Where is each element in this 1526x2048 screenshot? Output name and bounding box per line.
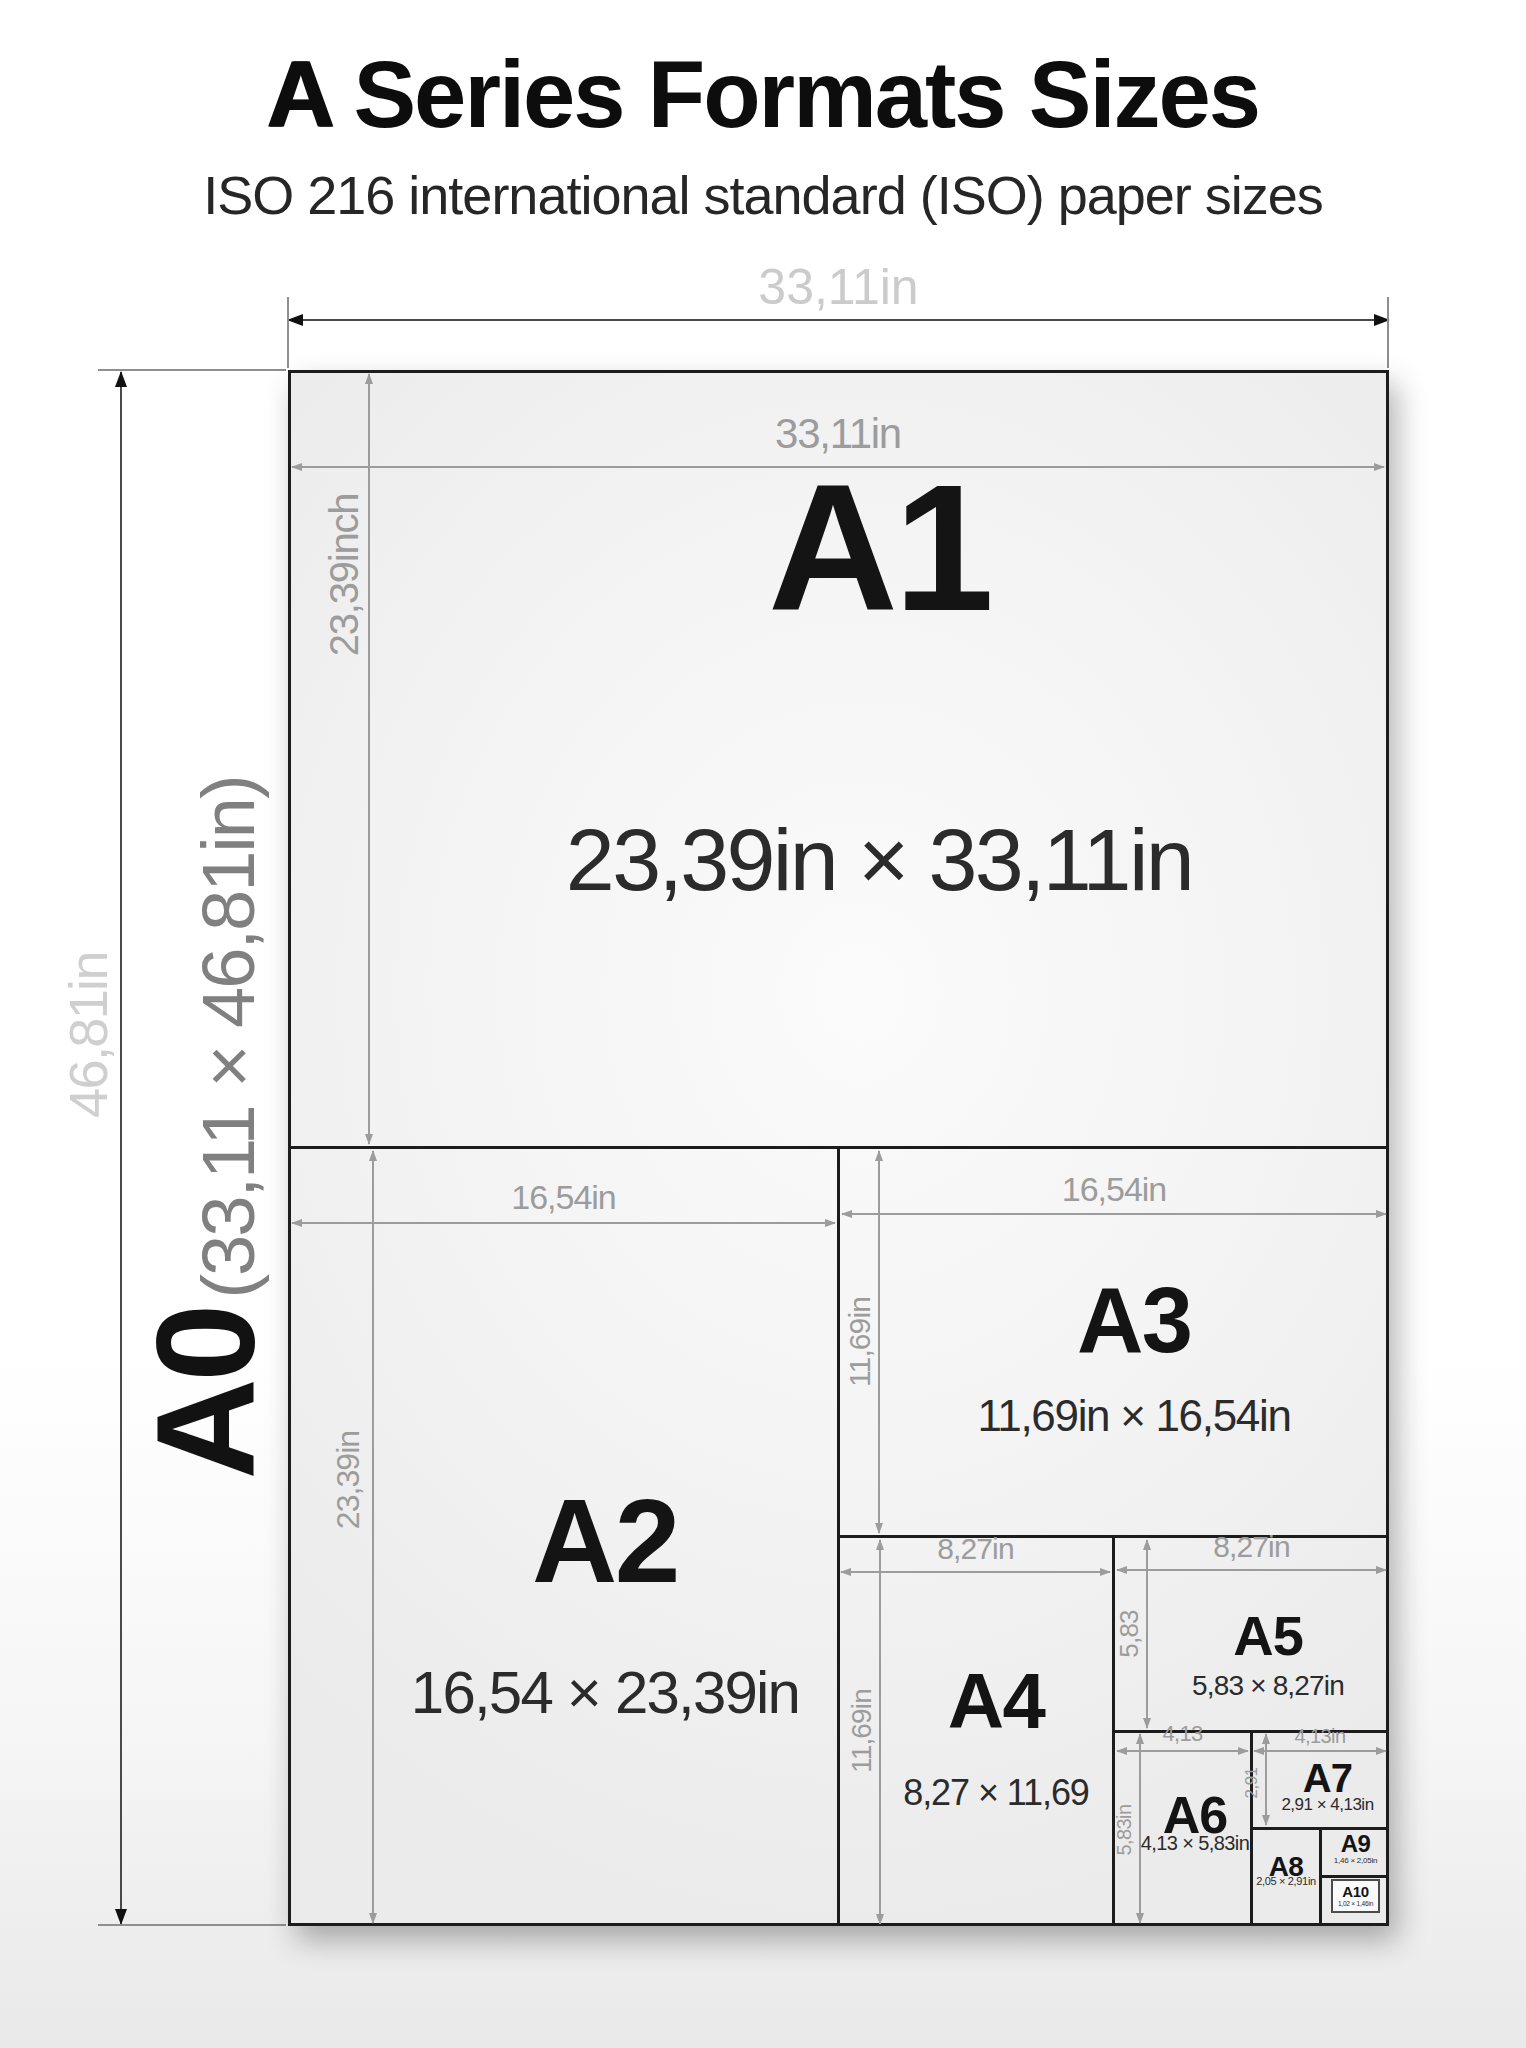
format-a1-dims: 23,39in × 33,11in: [369, 816, 1389, 904]
format-a3-dims: 11,69in × 16,54in: [879, 1394, 1389, 1438]
a2-height-label: 23,39in: [332, 1431, 364, 1529]
format-a4-dims: 8,27 × 11,69: [880, 1775, 1112, 1811]
a1-width-label: 33,11in: [292, 413, 1384, 455]
a3-width-dimline: [842, 1213, 1386, 1215]
a0-height-dimension-arrow: [120, 372, 122, 1924]
format-a8-dims: 2,05 × 2,91in: [1253, 1876, 1319, 1887]
a2-height-dimline: [372, 1151, 374, 1923]
a5-height-dimline: [1146, 1540, 1148, 1728]
a4-height-label: 11,69in: [848, 1689, 876, 1773]
a1-height-label: 23,39inch: [324, 494, 364, 657]
format-a9-dims: 1,46 × 2,05in: [1322, 1857, 1389, 1865]
a7-height-label: 2,91: [1243, 1767, 1260, 1798]
format-a7-name: A7: [1266, 1758, 1389, 1798]
format-a10-name: A10: [1331, 1884, 1380, 1899]
format-a5-dims: 5,83 × 8,27in: [1147, 1672, 1389, 1700]
format-a4-name: A4: [880, 1662, 1112, 1740]
page-subtitle: ISO 216 international standard (ISO) pap…: [0, 168, 1526, 222]
a0-format-name: A0: [136, 1307, 276, 1480]
format-a2-name: A2: [373, 1482, 837, 1600]
a3-height-label: 11,69in: [845, 1297, 875, 1387]
title-rest: Series Formats Sizes: [329, 42, 1259, 147]
a6-height-label: 5,83in: [1114, 1805, 1134, 1856]
a0-format-label: A0 (33,11 × 46,81in): [136, 776, 276, 1479]
a7-height-dimline: [1265, 1734, 1267, 1825]
a7-width-dimline: [1254, 1750, 1386, 1752]
format-a2-dims: 16,54 × 23,39in: [373, 1663, 837, 1723]
a5-height-label: 5,83: [1116, 1610, 1142, 1657]
title-letter-a: A: [267, 42, 329, 147]
format-a6-dims: 4,13 × 5,83in: [1140, 1833, 1250, 1853]
a6-height-dimline: [1139, 1734, 1141, 1923]
a3-height-dimline: [878, 1151, 880, 1533]
a4-width-dimline: [841, 1571, 1110, 1573]
extension-line-top-left: [287, 297, 289, 368]
a4-height-dimline: [879, 1540, 881, 1924]
a0-format-dims: (33,11 × 46,81in): [192, 776, 266, 1298]
a6-width-dimline: [1117, 1750, 1248, 1752]
extension-line-top-right: [1387, 297, 1389, 368]
a0-height-value: 46,81in: [61, 952, 115, 1118]
a1-height-dimline: [368, 374, 370, 1144]
a3-width-label: 16,54in: [842, 1172, 1386, 1206]
extension-line-left-top: [98, 369, 286, 371]
format-a9-name: A9: [1322, 1832, 1389, 1856]
a0-width-value: 33,11in: [288, 262, 1389, 312]
a5-width-dimline: [1117, 1569, 1386, 1571]
a0-width-dimension-arrow: [288, 319, 1389, 321]
paper-sizes-diagram: A Series Formats Sizes ISO 216 internati…: [0, 0, 1526, 2048]
format-a1-name: A1: [369, 458, 1389, 638]
a7-width-label: 4,13in: [1254, 1726, 1386, 1746]
format-a5-name: A5: [1147, 1608, 1389, 1664]
format-a7-dims: 2,91 × 4,13in: [1266, 1796, 1389, 1813]
divider-a9-a10: [1319, 1875, 1389, 1878]
format-a3-name: A3: [879, 1274, 1389, 1366]
a1-width-dimline: [292, 466, 1384, 468]
extension-line-left-bottom: [98, 1924, 286, 1926]
a5-width-label: 8,27in: [1117, 1532, 1386, 1562]
format-a10-dims: 1,02 × 1,46in: [1331, 1901, 1380, 1908]
page-title: A Series Formats Sizes: [0, 48, 1526, 142]
